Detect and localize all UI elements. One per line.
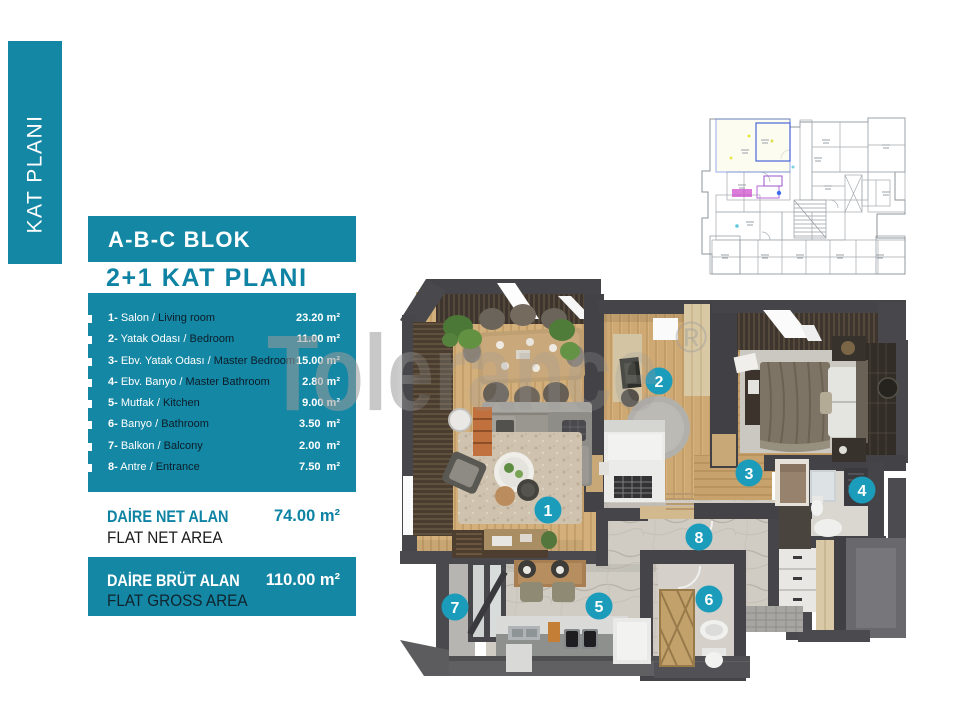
svg-text:5: 5 <box>595 599 604 616</box>
svg-text:7: 7 <box>451 600 460 617</box>
svg-text:3: 3 <box>745 466 754 483</box>
svg-text:2: 2 <box>655 374 664 391</box>
svg-text:4: 4 <box>858 483 867 500</box>
svg-text:8: 8 <box>695 530 704 547</box>
svg-text:6: 6 <box>705 592 714 609</box>
svg-text:1: 1 <box>544 503 553 520</box>
